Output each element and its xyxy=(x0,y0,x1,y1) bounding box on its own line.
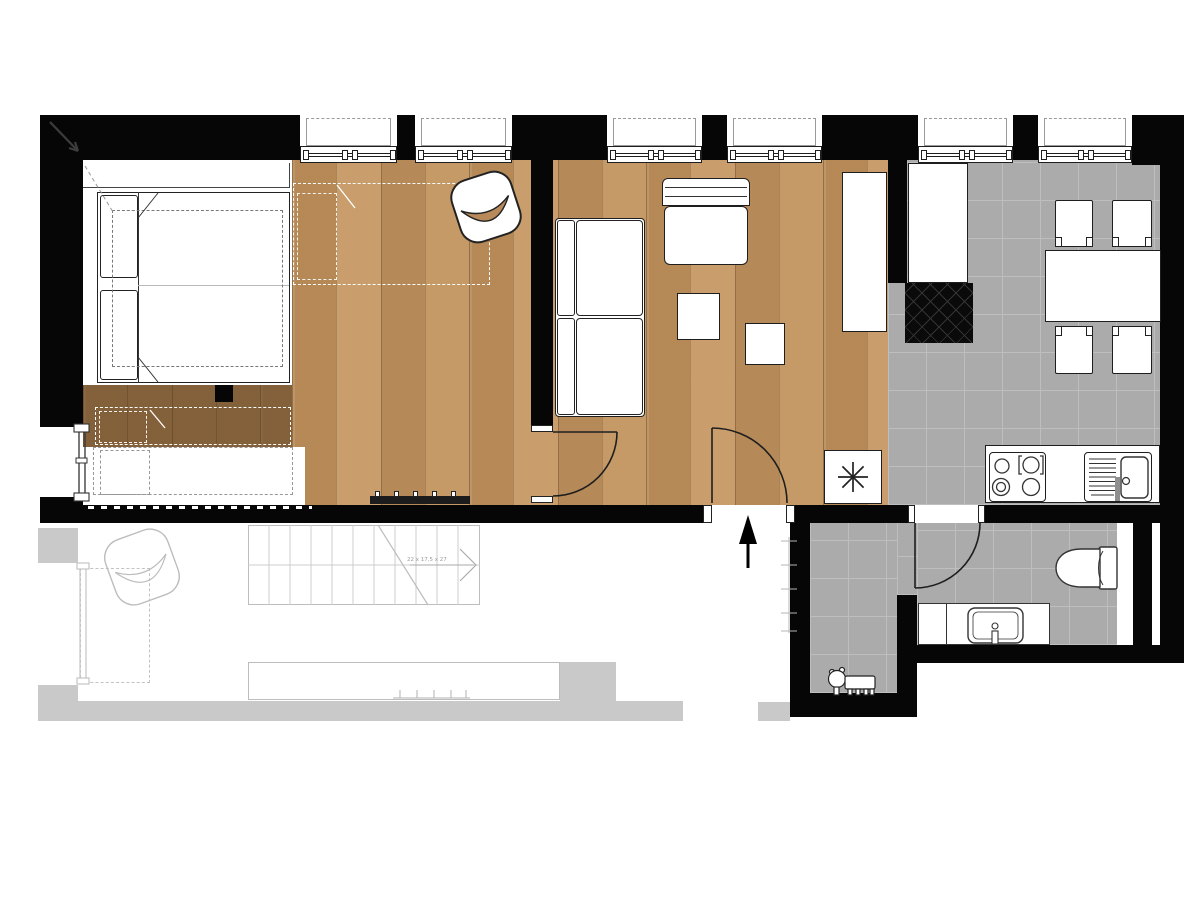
entrance-door xyxy=(712,428,787,503)
left-window-glazing xyxy=(74,424,89,501)
north-arrow xyxy=(50,122,78,151)
stove-burners xyxy=(993,456,1044,496)
toilet-icon xyxy=(1056,547,1117,589)
wardrobe-fold-marks xyxy=(150,185,355,428)
vanity-basin xyxy=(968,608,1023,644)
ghost-window-glazing xyxy=(77,563,89,684)
stairs-dimension-text: 22 x 17,5 x 27 xyxy=(407,557,447,563)
sink-divider xyxy=(1115,477,1120,501)
ghost-counter-ticks xyxy=(393,690,470,698)
ladder-marks xyxy=(781,537,797,633)
sink-basin xyxy=(1121,457,1148,498)
bedroom-door xyxy=(553,432,617,496)
bed-fold-marks xyxy=(138,193,158,382)
bedroom-armchair xyxy=(447,167,526,247)
bathroom-door xyxy=(915,523,980,588)
ghost-stairs-arrow xyxy=(410,549,476,581)
detail-overlay: 22 x 17,5 x 27 xyxy=(0,0,1200,900)
dog-icon xyxy=(829,668,876,696)
entrance-arrow-icon xyxy=(739,515,757,568)
floor-plan: 22 x 17,5 x 27 xyxy=(0,0,1200,900)
heater-asterisk-icon xyxy=(838,462,868,492)
ghost-armchair xyxy=(99,524,184,610)
sink-drainer xyxy=(1089,459,1116,495)
ceiling-slope-line xyxy=(85,166,113,212)
